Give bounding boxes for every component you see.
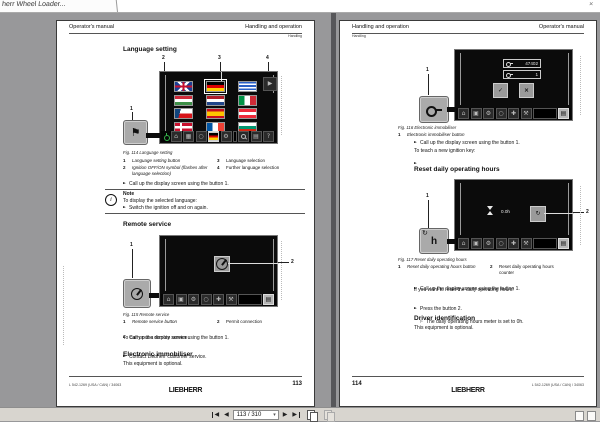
callout-line-inner — [228, 263, 279, 264]
home-icon — [163, 294, 174, 305]
electronic-immobiliser-button — [419, 96, 449, 123]
legend-num: 3 — [217, 158, 220, 164]
display-screen-hours: 0.0h — [454, 179, 573, 251]
figure-caption: Fig. 116 Electronic immobiliser — [398, 125, 456, 130]
header-right: Handling and operation — [245, 24, 302, 30]
flag-at — [238, 108, 257, 119]
key-code-value: 47402 — [525, 61, 538, 66]
page-footer: L 542-1269 (USA / CAN) / 34063 LIEBHERR … — [69, 376, 302, 397]
callout-line — [268, 62, 269, 71]
document-viewer[interactable]: Operator's manual Handling and operation… — [0, 13, 600, 407]
daily-hours-value: 0.0h — [501, 209, 510, 214]
header-left: Handling and operation — [352, 24, 409, 30]
home-icon — [458, 238, 469, 249]
key-icon — [506, 61, 513, 66]
callout-line — [428, 74, 429, 95]
reset-counter-button — [530, 206, 546, 222]
camera-icon — [471, 238, 482, 249]
legend-num: 1 — [123, 158, 126, 164]
page-number-input[interactable]: 113 / 310 ▾ — [233, 410, 279, 420]
callout-line — [278, 262, 289, 263]
note-info-icon — [105, 194, 117, 206]
screen-guide-line — [568, 53, 569, 105]
legend-text: Language selection — [226, 158, 304, 164]
remote-service-button — [123, 279, 151, 308]
camera-icon — [471, 108, 482, 119]
flag-hu — [174, 95, 193, 106]
viewer-status-bar: ◀ ◀ 113 / 310 ▾ ▶ ▶ — [0, 407, 600, 421]
callout-4: 4 — [266, 55, 269, 61]
x-icon — [524, 88, 529, 94]
body-text: To teach a new ignition key: — [414, 148, 584, 155]
screen-guide-line — [460, 53, 461, 105]
tools-icon — [226, 294, 237, 305]
hours-h-icon: h — [431, 236, 437, 247]
page-footer: 114 LIEBHERR L 542-1269 (USA / CAN) / 34… — [352, 376, 584, 397]
help-icon — [263, 131, 274, 142]
legend-text: Ignition OFF/ON symbol (flashes after la… — [132, 165, 212, 176]
key-count-value: 1 — [535, 72, 538, 77]
body-text: To carry out a remote service: — [123, 335, 305, 342]
flag-de — [206, 81, 225, 92]
callout-2: 2 — [162, 55, 165, 61]
section-title-electronic-immobiliser: Electronic immobiliser — [123, 351, 193, 358]
tab-bar: herr Wheel Loader... × — [0, 0, 600, 13]
screen-toolbar — [161, 294, 276, 305]
home-icon — [171, 131, 182, 142]
logo-wordmark: LIEBHERR — [451, 387, 484, 394]
instruction-step: Press the button 2. — [414, 306, 590, 313]
page-113: Operator's manual Handling and operation… — [56, 20, 315, 407]
section-title-reset-hours: Reset daily operating hours — [414, 166, 500, 173]
home-icon — [458, 108, 469, 119]
legend-text: Remote service button — [132, 319, 214, 325]
callout-line-inner — [544, 213, 574, 214]
callout-line — [428, 200, 429, 228]
button-connector — [149, 293, 159, 298]
key-code-row: 47402 — [503, 59, 541, 68]
flag-es — [206, 108, 225, 119]
drop-icon — [201, 294, 212, 305]
legend-num: 1 — [398, 132, 401, 138]
tools-icon — [521, 238, 532, 249]
screen-guide-line — [460, 183, 461, 235]
hourglass-icon — [487, 206, 494, 215]
figure-caption: Fig. 117 Reset daily operating hours — [398, 257, 467, 262]
legend-num: 2 — [217, 319, 220, 325]
figure-caption: Fig. 114 Language setting — [123, 150, 172, 155]
circular-arrow-icon — [422, 230, 428, 237]
pdf-viewer-window: { "tab": {"title": "herr Wheel Loader...… — [0, 0, 600, 421]
legend-text: Further language selection — [226, 165, 304, 171]
vertical-code-text — [580, 56, 581, 116]
callout-2: 2 — [586, 209, 589, 215]
last-page-button[interactable]: ▶ — [291, 412, 299, 418]
single-page-view-button[interactable] — [323, 410, 334, 420]
menu-grid-icon — [183, 131, 194, 142]
page-divider — [331, 13, 336, 407]
logo-wordmark: LIEBHERR — [169, 387, 202, 394]
section-title-driver-identification: Driver identification — [414, 315, 475, 322]
cancel-button — [519, 83, 534, 98]
callout-line — [132, 249, 133, 278]
callout-1: 1 — [426, 67, 429, 73]
callout-1: 1 — [130, 242, 133, 248]
callout-line — [573, 212, 584, 213]
next-page-button[interactable]: ▶ — [282, 412, 289, 418]
confirm-button — [493, 83, 508, 98]
legend-text: Electronic immobiliser button — [407, 132, 527, 138]
vertical-code-text — [281, 76, 282, 136]
plus-icon — [508, 238, 519, 249]
body-text: This equipment is optional. — [414, 325, 473, 332]
language-setting-button — [123, 120, 148, 145]
page-number: 113 — [292, 381, 302, 387]
screen-guide-line — [165, 75, 166, 132]
liebherr-logo: LIEBHERR — [451, 379, 484, 397]
key-icon — [506, 72, 513, 77]
arrow-right-icon — [268, 81, 273, 87]
legend-text: Reset daily operating hours button — [407, 264, 487, 270]
corner-tool-icon[interactable] — [587, 411, 596, 421]
remote-service-icon — [131, 288, 143, 300]
page-navigation: ◀ ◀ 113 / 310 ▾ ▶ ▶ — [212, 409, 334, 421]
page-indicator[interactable]: 113 / 310 — [237, 412, 262, 418]
gear-icon — [188, 294, 199, 305]
note-block: Note To display the selected language: S… — [105, 189, 305, 214]
legend-num: 4 — [217, 165, 220, 171]
gear-icon — [483, 108, 494, 119]
key-count-row: 1 — [503, 70, 541, 79]
document-code: L 542-1269 (USA / CAN) / 34063 — [532, 383, 584, 387]
previous-page-button[interactable]: ◀ — [223, 412, 230, 418]
page-header: Handling and operation Operator's manual — [352, 24, 584, 34]
vertical-code-text — [63, 266, 64, 346]
display-screen-language — [159, 71, 278, 144]
header-right: Operator's manual — [539, 24, 584, 30]
section-title-remote-service: Remote service — [123, 221, 171, 228]
screen-toolbar — [456, 238, 571, 249]
header-subsection: Handling — [352, 34, 366, 38]
screen-toolbar — [161, 131, 276, 142]
button-connector — [146, 133, 160, 138]
section-title-language-setting: Language setting — [123, 46, 177, 53]
remote-service-icon — [216, 258, 228, 270]
current-language-flag — [208, 131, 219, 142]
flag-stack-icon — [131, 127, 141, 138]
flag-gr — [238, 81, 257, 92]
screen-field — [238, 294, 262, 305]
instruction-step: Call up the display screen using the but… — [123, 181, 311, 188]
screen-field — [533, 238, 557, 249]
flag-uk — [174, 81, 193, 92]
document-icon — [251, 131, 262, 142]
body-text: This equipment is optional. — [123, 361, 182, 368]
note-text: To display the selected language: — [123, 198, 197, 205]
next-language-page-button — [263, 77, 277, 91]
callout-line — [164, 62, 165, 71]
facing-pages-view-button[interactable] — [306, 410, 317, 420]
flag-grid — [174, 81, 260, 132]
note-step: Switch the ignition off and on again. — [123, 205, 315, 212]
tab-close-icon[interactable]: × — [589, 1, 594, 8]
instruction-step: Call up the display screen using the but… — [414, 140, 590, 147]
immobiliser-icon — [558, 108, 569, 119]
button-connector — [447, 107, 455, 112]
flag-cz — [174, 108, 193, 119]
legend-text: Permit connection — [226, 319, 304, 325]
flag-nl — [206, 95, 225, 106]
chevron-down-icon[interactable]: ▾ — [273, 412, 276, 418]
callout-line — [220, 62, 221, 71]
page-114: Handling and operation Operator's manual… — [339, 20, 597, 407]
gear-icon — [483, 238, 494, 249]
check-icon — [498, 88, 503, 94]
drop-icon — [496, 238, 507, 249]
clock-icon — [196, 131, 207, 142]
vertical-code-text — [580, 186, 581, 246]
callout-2: 2 — [291, 259, 294, 265]
page-header: Operator's manual Handling and operation — [69, 24, 302, 34]
display-screen-remote — [159, 235, 278, 307]
reset-icon — [535, 211, 540, 217]
figure-caption: Fig. 115 Remote service — [123, 312, 169, 317]
screen-field — [233, 131, 237, 142]
flag-it — [238, 95, 257, 106]
legend-text: Reset daily operating hours counter — [499, 264, 555, 275]
service-icon — [263, 294, 274, 305]
plus-icon — [213, 294, 224, 305]
header-subsection: Handling — [288, 34, 302, 38]
page-number: 114 — [352, 381, 362, 387]
legend-text: Language setting button — [132, 158, 214, 164]
camera-icon — [176, 294, 187, 305]
button-connector — [447, 239, 455, 244]
plus-icon — [508, 108, 519, 119]
tools-icon — [521, 108, 532, 119]
drop-icon — [496, 108, 507, 119]
callout-line — [132, 112, 133, 120]
key-icon — [426, 105, 442, 115]
liebherr-logo: LIEBHERR — [169, 379, 202, 397]
vertical-code-text — [281, 241, 282, 301]
screen-field — [533, 108, 557, 119]
search-icon — [238, 131, 249, 142]
tab-title[interactable]: herr Wheel Loader... — [2, 1, 66, 8]
header-left: Operator's manual — [69, 24, 114, 30]
reset-daily-hours-button: h — [419, 228, 449, 254]
screen-toolbar — [456, 108, 571, 119]
legend-num: 2 — [123, 165, 126, 171]
callout-1: 1 — [426, 193, 429, 199]
hours-icon — [558, 238, 569, 249]
screen-guide-line — [568, 183, 569, 235]
corner-tool-icon[interactable] — [575, 411, 584, 421]
first-page-button[interactable]: ◀ — [212, 412, 220, 418]
display-screen-immobiliser: 47402 1 — [454, 49, 573, 121]
legend-num: 1 — [123, 319, 126, 325]
callout-3: 3 — [218, 55, 221, 61]
gear-icon — [221, 131, 232, 142]
screen-guide-line — [273, 239, 274, 291]
body-text: If you want to reset the daily operating… — [414, 287, 584, 294]
permit-connection-button — [214, 256, 230, 272]
note-title: Note — [123, 191, 134, 198]
legend-num: 1 — [398, 264, 401, 270]
legend-num: 2 — [490, 264, 493, 270]
screen-guide-line — [165, 239, 166, 291]
document-code: L 542-1269 (USA / CAN) / 34063 — [69, 383, 121, 387]
ignition-offon-icon — [163, 133, 169, 140]
